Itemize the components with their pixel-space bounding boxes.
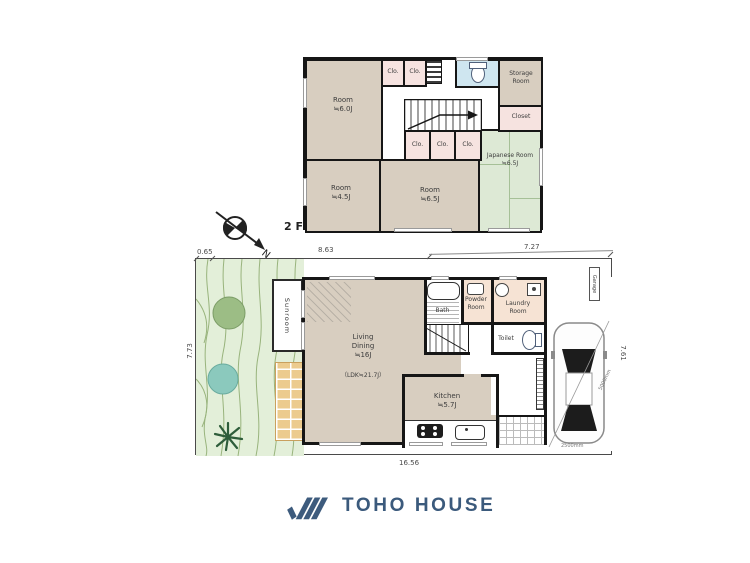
parking-dimension-line [547, 277, 612, 451]
wall [424, 352, 470, 355]
wall [496, 374, 499, 448]
living-dining-size: ≒16J [342, 351, 384, 360]
room-s-size: ≒6.5J [400, 195, 460, 204]
japanese-room-2f [478, 129, 542, 233]
compass-icon: N [210, 207, 276, 259]
clo-label: Clo. [404, 141, 431, 149]
house-1f: Living Dining ≒16J （LDK≒21.7J） Kitchen ≒… [302, 277, 547, 445]
brand-logo: TOHO HOUSE [286, 487, 495, 525]
overhang-hatch [307, 282, 351, 322]
window [431, 276, 449, 280]
wall [491, 352, 544, 355]
window [301, 290, 305, 318]
japanese-room-size: ≒6.5J [485, 160, 535, 168]
storage-room-label: Storage Room [503, 70, 539, 85]
powder-room-label: Powder Room [462, 296, 490, 311]
sunroom-label: Sunroom [284, 297, 292, 333]
cabinet-2f [426, 60, 442, 84]
entrance-porch [499, 415, 544, 445]
room-sw-name: Room [312, 184, 370, 193]
bathtub-icon [427, 282, 460, 300]
wall [491, 280, 494, 354]
kitchen-name: Kitchen [421, 392, 473, 401]
staircase-2f [404, 99, 482, 132]
dim-line-top-right [429, 250, 613, 255]
washbasin-icon [467, 283, 484, 295]
clo-label: Clo. [454, 141, 482, 149]
japanese-room-name: Japanese Room [485, 152, 535, 160]
stove-burner [433, 432, 437, 436]
living-dining-label: Living Dining ≒16J [342, 333, 384, 360]
laundry-sink-icon [495, 283, 509, 297]
dim-tick [608, 252, 614, 258]
room-s-label: Room ≒6.5J [400, 186, 460, 204]
window [539, 148, 543, 186]
floorplan-page: Room ≒6.0J Room ≒4.5J Room ≒6.5J Japanes… [0, 0, 750, 563]
room-nw-size: ≒6.0J [314, 105, 372, 114]
japanese-room-label: Japanese Room ≒6.5J [485, 152, 535, 167]
tatami-line [510, 198, 540, 199]
window [394, 228, 452, 232]
brick-terrace [275, 362, 303, 441]
laundry-room-label: Laundry Room [501, 300, 535, 315]
garage-label: Garage [592, 275, 598, 293]
sink-icon [455, 425, 485, 440]
dim-left: 7.73 [186, 343, 194, 359]
palm-plant-icon [215, 423, 242, 450]
window [303, 78, 307, 108]
toho-house-logomark-icon [286, 487, 332, 525]
dim-top-right: 7.27 [524, 243, 540, 251]
room-nw-name: Room [314, 96, 372, 105]
toilet-label: Toilet [493, 335, 519, 343]
brand-name: TOHO HOUSE [342, 495, 495, 517]
kitchen-size: ≒5.7J [421, 401, 473, 410]
shoe-cabinet [536, 358, 544, 410]
window [301, 322, 305, 350]
dim-bottom: 16.56 [399, 459, 419, 467]
room-sw-size: ≒4.5J [312, 193, 370, 202]
bath-label: Bath [426, 307, 459, 315]
toilet-tank-2f [469, 62, 487, 69]
dim-top-left: 0.65 [197, 248, 213, 256]
room-nw-label: Room ≒6.0J [314, 96, 372, 114]
stove-burner [433, 426, 437, 430]
stove-burner [421, 426, 425, 430]
window [329, 276, 375, 280]
floor2-plan: Room ≒6.0J Room ≒4.5J Room ≒6.5J Japanes… [303, 57, 543, 230]
parking-area: 5000mm 2500mm [547, 277, 612, 451]
dim-right: 7.61 [619, 345, 627, 361]
room-s-name: Room [400, 186, 460, 195]
tatami-line [509, 131, 510, 231]
staircase-1f [424, 324, 469, 354]
site-plan-1f: Sunroom [195, 258, 612, 455]
closet-label: Closet [500, 113, 542, 121]
clo-label: Clo. [429, 141, 456, 149]
window [319, 442, 361, 446]
sunroom: Sunroom [272, 279, 303, 352]
window [409, 442, 443, 446]
stove-burner [421, 432, 425, 436]
living-dining-name: Living Dining [342, 333, 384, 351]
window [451, 442, 487, 446]
floor2-tag: 2 F [284, 220, 303, 233]
faucet-dot [465, 428, 468, 431]
kitchen-label: Kitchen ≒5.7J [421, 392, 473, 410]
parking-width-label: 2500mm [561, 443, 583, 449]
window [488, 228, 530, 232]
clo-label: Clo. [381, 68, 405, 76]
wall [461, 322, 544, 325]
washer-dot [532, 287, 536, 291]
window [303, 178, 307, 206]
clo-label: Clo. [403, 68, 427, 76]
garage-sign: Garage [589, 267, 600, 301]
wall [424, 280, 427, 354]
room-sw-label: Room ≒4.5J [312, 184, 370, 202]
wall [402, 374, 464, 377]
ldk-note: （LDK≒21.7J） [327, 372, 399, 380]
window [499, 276, 517, 280]
dim-top-middle: 8.63 [318, 246, 334, 254]
window [456, 57, 488, 61]
toilet-tank-1f [535, 333, 542, 347]
